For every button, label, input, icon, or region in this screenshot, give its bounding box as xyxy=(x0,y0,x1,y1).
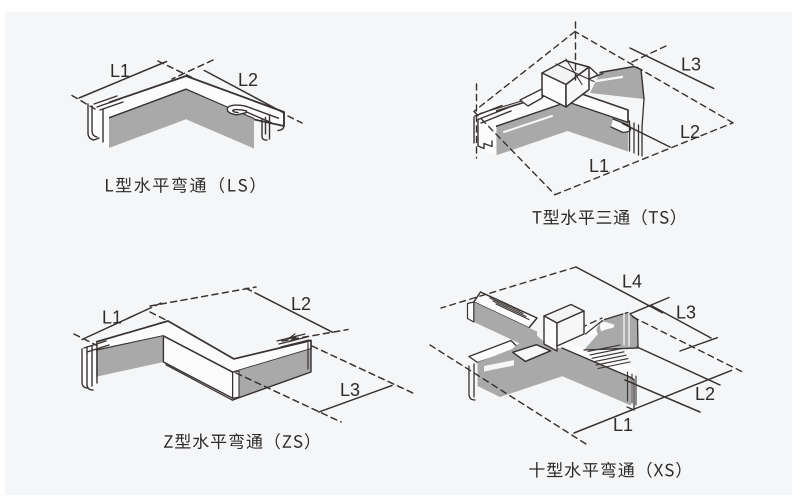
svg-text:L2: L2 xyxy=(291,294,311,314)
svg-text:L2: L2 xyxy=(238,70,258,90)
svg-text:L3: L3 xyxy=(681,55,701,75)
svg-text:L1: L1 xyxy=(589,156,609,176)
svg-text:L1: L1 xyxy=(110,61,130,81)
svg-text:L1: L1 xyxy=(102,308,122,328)
svg-text:L4: L4 xyxy=(622,272,642,292)
svg-text:L3: L3 xyxy=(340,380,360,400)
svg-text:L3: L3 xyxy=(676,303,696,323)
svg-text:L1: L1 xyxy=(613,415,633,435)
svg-text:L2: L2 xyxy=(695,384,715,404)
svg-text:L2: L2 xyxy=(680,122,700,142)
